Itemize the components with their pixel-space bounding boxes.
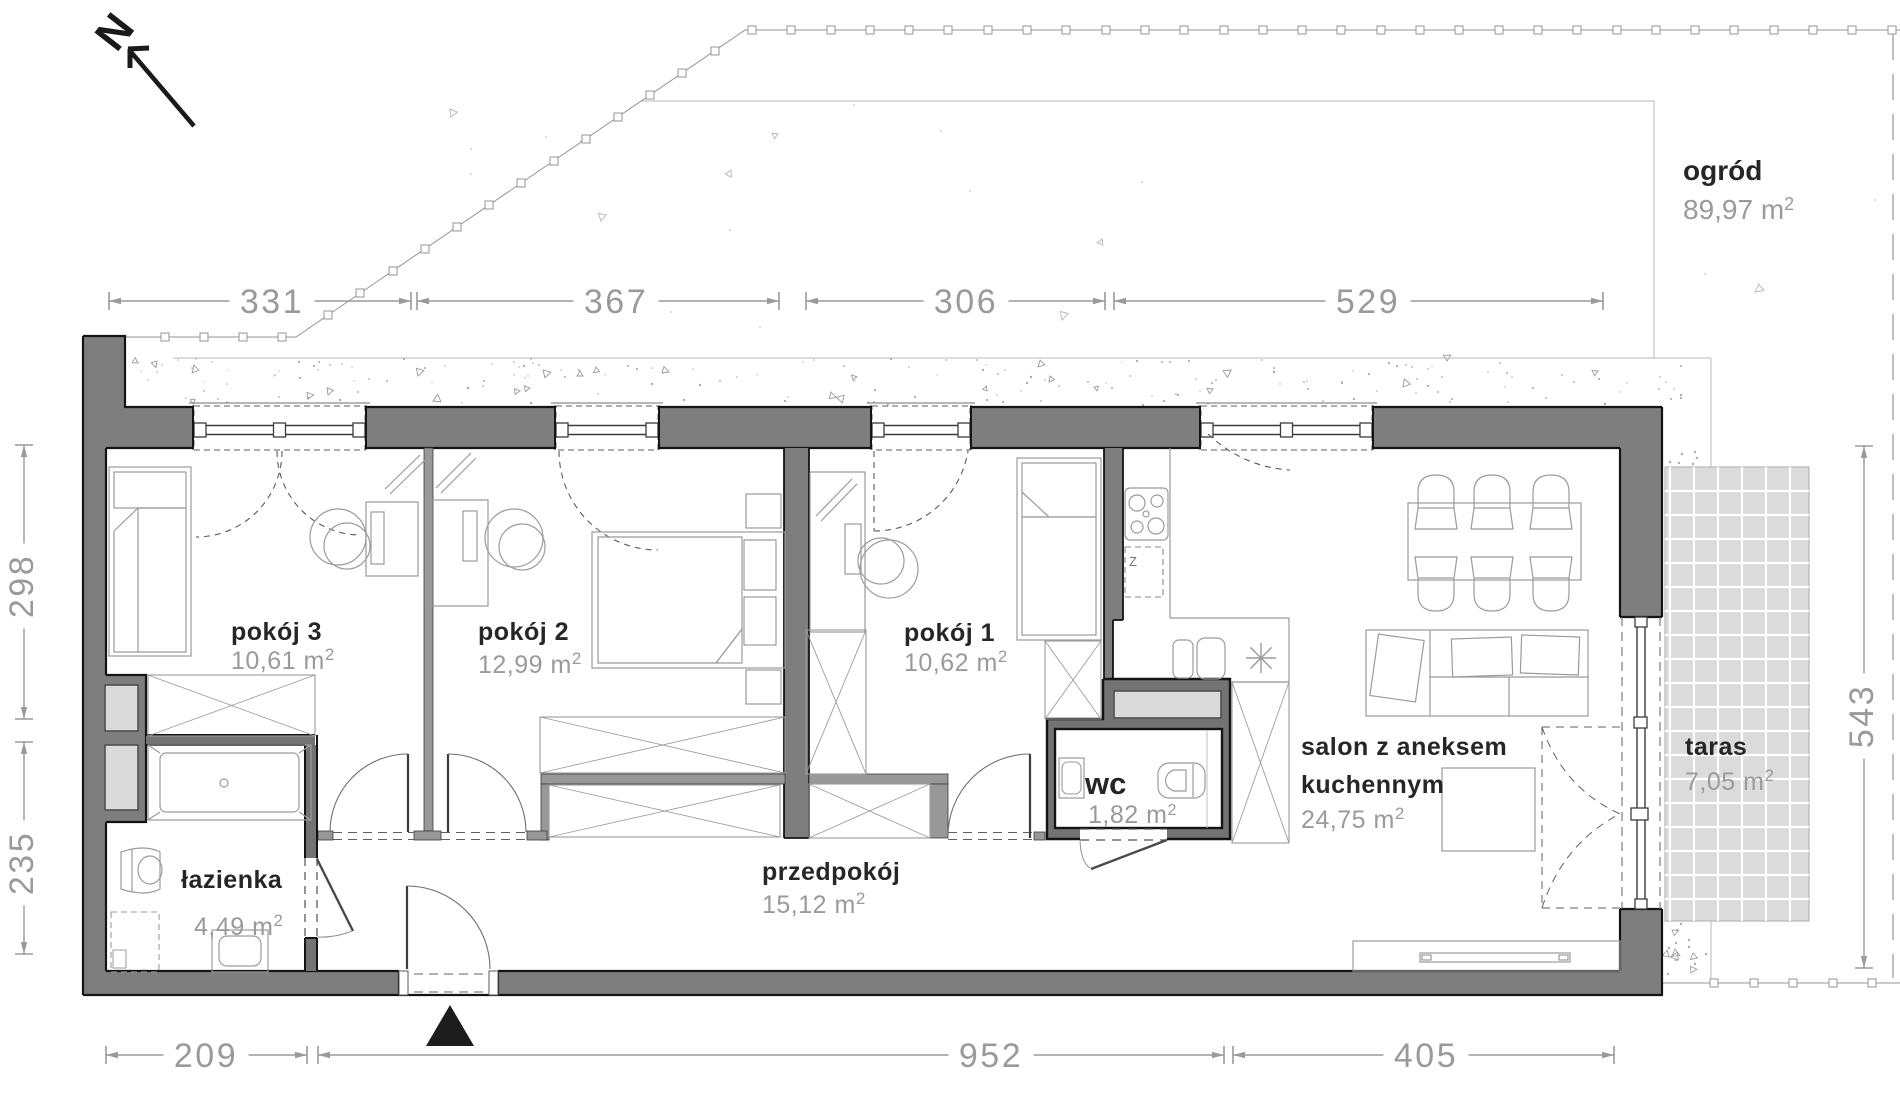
svg-text:952: 952 (959, 1037, 1023, 1075)
svg-text:pokój 1: pokój 1 (904, 619, 995, 647)
svg-text:306: 306 (934, 283, 998, 321)
svg-text:331: 331 (240, 283, 304, 321)
svg-text:10,61 m2: 10,61 m2 (231, 645, 335, 675)
svg-text:Z: Z (1129, 554, 1137, 569)
svg-text:529: 529 (1336, 283, 1400, 321)
svg-text:24,75 m2: 24,75 m2 (1301, 804, 1405, 834)
svg-text:7,05 m2: 7,05 m2 (1685, 766, 1774, 796)
svg-text:przedpokój: przedpokój (762, 858, 900, 886)
svg-text:wc: wc (1084, 766, 1126, 801)
svg-text:367: 367 (584, 283, 648, 321)
svg-text:pokój 3: pokój 3 (231, 618, 322, 646)
svg-text:235: 235 (3, 831, 41, 895)
svg-text:298: 298 (3, 554, 41, 618)
svg-text:209: 209 (174, 1037, 238, 1075)
svg-text:łazienka: łazienka (181, 866, 283, 894)
svg-text:543: 543 (1843, 684, 1881, 748)
svg-text:1,82 m2: 1,82 m2 (1088, 801, 1177, 829)
svg-text:kuchennym: kuchennym (1301, 771, 1444, 799)
svg-text:15,12 m2: 15,12 m2 (762, 889, 866, 919)
svg-text:pokój 2: pokój 2 (478, 618, 569, 646)
svg-text:4,49 m2: 4,49 m2 (194, 911, 283, 941)
svg-text:ogród: ogród (1683, 155, 1762, 186)
svg-text:taras: taras (1685, 733, 1747, 761)
svg-text:salon z aneksem: salon z aneksem (1301, 733, 1507, 761)
svg-text:10,62 m2: 10,62 m2 (904, 647, 1008, 677)
svg-text:12,99 m2: 12,99 m2 (478, 649, 582, 679)
svg-text:89,97 m2: 89,97 m2 (1683, 194, 1794, 225)
svg-text:405: 405 (1394, 1037, 1458, 1075)
